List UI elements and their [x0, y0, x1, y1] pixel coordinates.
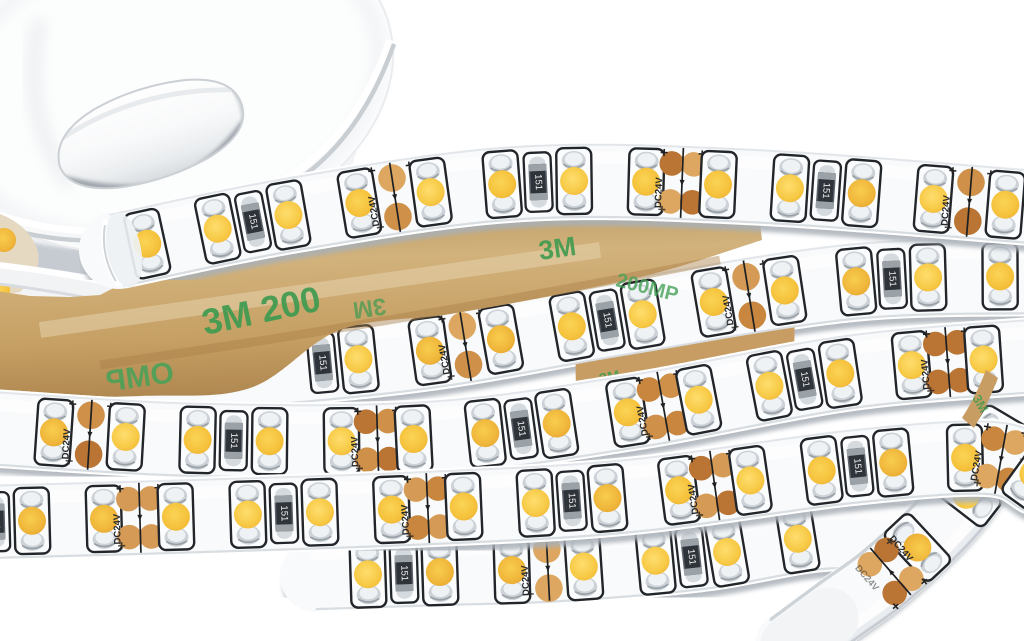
svg-text:151: 151: [228, 433, 239, 449]
svg-text:+: +: [948, 162, 957, 179]
svg-text:151: 151: [566, 493, 578, 510]
svg-text:151: 151: [0, 514, 2, 530]
svg-text:DC24V: DC24V: [400, 504, 412, 536]
svg-text:151: 151: [685, 548, 698, 565]
svg-text:DC24V: DC24V: [60, 428, 73, 460]
svg-text:DC24V: DC24V: [520, 564, 533, 596]
svg-text:+: +: [116, 480, 125, 496]
svg-text:151: 151: [886, 271, 898, 287]
svg-text:DC24V: DC24V: [349, 436, 361, 468]
svg-text:3M: 3M: [537, 231, 578, 266]
svg-text:+: +: [660, 144, 669, 160]
svg-text:+: +: [353, 403, 362, 419]
svg-text:+: +: [68, 395, 77, 411]
svg-text:151: 151: [278, 505, 289, 521]
svg-text:151: 151: [532, 174, 544, 190]
svg-text:151: 151: [820, 182, 832, 199]
svg-text:DC24V: DC24V: [653, 176, 665, 208]
svg-text:3M: 3M: [351, 292, 388, 323]
svg-text:DC24V: DC24V: [112, 513, 124, 545]
svg-text:+: +: [403, 471, 412, 487]
svg-text:151: 151: [851, 458, 864, 475]
svg-text:151: 151: [515, 420, 528, 437]
svg-text:+: +: [922, 325, 931, 342]
svg-text:151: 151: [398, 565, 410, 581]
svg-text:151: 151: [316, 354, 328, 371]
